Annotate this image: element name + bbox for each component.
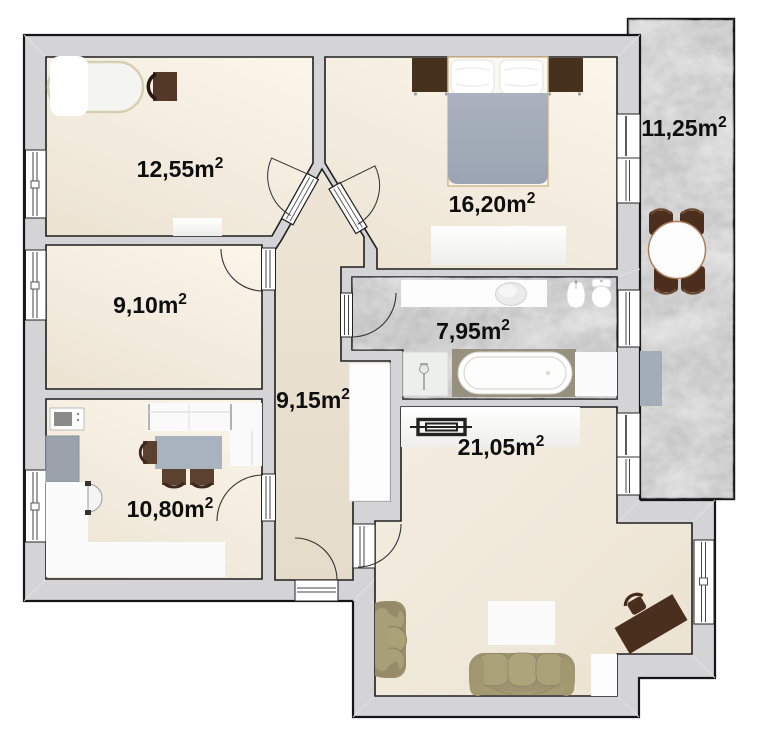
svg-text:7,95m2: 7,95m2 [436,317,510,344]
svg-text:9,15m2: 9,15m2 [276,386,350,413]
svg-text:9,10m2: 9,10m2 [113,291,187,318]
svg-text:11,25m2: 11,25m2 [641,114,726,141]
svg-text:21,05m2: 21,05m2 [458,433,545,460]
svg-text:12,55m2: 12,55m2 [137,155,224,182]
svg-text:16,20m2: 16,20m2 [449,190,536,217]
svg-text:10,80m2: 10,80m2 [127,495,214,522]
